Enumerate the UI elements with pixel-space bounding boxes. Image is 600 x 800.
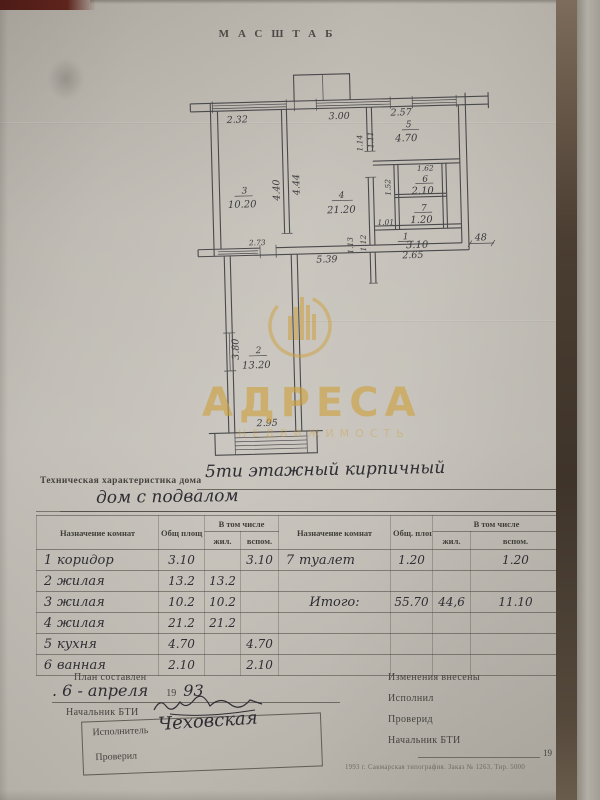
table-row: 2жилая 13.2 13.2 — [37, 571, 561, 592]
room-name: коридор — [57, 553, 114, 568]
table-row: 4жилая 21.2 21.2 — [37, 613, 561, 634]
photo-top-left-dark-edge — [0, 0, 96, 10]
watermark-brand-text: АДРЕСА — [202, 380, 422, 426]
room-living-area: 13.2 — [205, 571, 241, 592]
room-total-area — [391, 571, 433, 592]
col-header-name-left: Назначение комнат — [37, 516, 159, 550]
room-living-area — [205, 634, 241, 655]
room-aux-area: 1.20 — [471, 550, 561, 571]
col-header-aux-left: вспом. — [241, 532, 279, 550]
dim-label: 2.32 — [226, 114, 248, 126]
room-area: 13.20 — [242, 360, 272, 372]
checked-label-right: Проверид — [388, 714, 433, 725]
dim-label: 48 — [474, 232, 487, 243]
plan-date-handwritten: . 6 - апреля — [52, 681, 148, 700]
room-row-number: 2 — [39, 574, 57, 589]
room-aux-area: 2.10 — [241, 655, 279, 676]
room-aux-area — [241, 613, 279, 634]
dim-label: 2.57 — [389, 107, 412, 119]
dim-label: 2.73 — [248, 238, 266, 247]
room-living-area: 10.2 — [205, 592, 241, 613]
title-underline — [197, 489, 560, 490]
col-header-total-right: Общ. площ. — [391, 516, 433, 550]
col-header-including-right: В том числе — [433, 516, 561, 532]
date-year-printed: 19 — [543, 748, 552, 758]
room-number: 6 — [422, 175, 428, 185]
room-total-area — [391, 613, 433, 634]
room-living-area — [433, 634, 471, 655]
room-total-area: 21.2 — [159, 613, 205, 634]
table-row: 1коридор 3.10 3.10 7туалет 1.20 1.20 — [37, 550, 561, 571]
watermark-logo-icon — [264, 286, 336, 360]
col-header-living-left: жил. — [205, 532, 241, 550]
room-name: кухня — [57, 637, 97, 652]
room-row-number: 5 — [39, 637, 57, 652]
dim-label: 1.01 — [377, 218, 394, 227]
tech-characteristic-label: Техническая характеристика дома — [40, 476, 201, 486]
room-area: 1.20 — [410, 215, 433, 227]
room-name — [279, 613, 391, 634]
table-row: 5кухня 4.70 4.70 — [37, 634, 561, 655]
page-bottom-shadow — [0, 790, 556, 800]
dim-label: 2.65 — [401, 250, 423, 262]
totals-living-area: 44,6 — [433, 592, 471, 613]
room-aux-area — [471, 571, 561, 592]
col-header-living-right: жил. — [433, 532, 471, 550]
room-name: туалет — [299, 553, 355, 568]
room-name: жилая — [57, 616, 105, 631]
room-living-area: 21.2 — [205, 613, 241, 634]
room-area: 4.70 — [394, 133, 418, 145]
room-total-area — [391, 634, 433, 655]
room-aux-area — [471, 613, 561, 634]
dim-label: 4.44 — [291, 174, 303, 196]
room-aux-area — [241, 571, 279, 592]
col-header-name-right: Назначение комнат — [279, 516, 391, 550]
page-binding-edge — [556, 0, 577, 800]
totals-total-area: 55.70 — [391, 592, 433, 613]
room-total-area: 4.70 — [159, 634, 205, 655]
room-row-number: 6 — [39, 658, 57, 673]
dim-label: 4.40 — [271, 179, 283, 201]
executor-label: Исполнитель — [92, 725, 148, 738]
room-area: 10.20 — [228, 199, 258, 211]
page-left-shadow — [0, 0, 8, 800]
room-name: жилая — [57, 574, 105, 589]
room-number: 7 — [421, 204, 427, 214]
rooms-table: Назначение комнат Общ площ В том числе Н… — [36, 515, 560, 676]
photo-top-shadow — [90, 0, 560, 4]
room-aux-area — [241, 592, 279, 613]
room-name — [279, 571, 391, 592]
room-number: 5 — [406, 120, 412, 130]
watermark-tagline-text: НЕДВИЖИМОСТЬ — [238, 427, 410, 440]
dim-label: 1.52 — [383, 179, 392, 196]
date-blank-line — [418, 757, 540, 758]
room-area: 21.20 — [326, 205, 357, 217]
house-type-handwritten: 5ти этажный кирпичный — [205, 458, 446, 482]
room-number: 4 — [338, 191, 345, 201]
checked-label: Проверил — [95, 751, 137, 764]
background-page-edge — [577, 0, 600, 800]
dim-label: 1.11 — [366, 131, 375, 148]
room-row-number: 4 — [39, 616, 57, 631]
chief-bti-label: Начальник БТИ — [66, 707, 139, 718]
room-row-number: 3 — [39, 595, 57, 610]
room-living-area — [205, 550, 241, 571]
room-row-number: 7 — [281, 553, 299, 568]
room-name: жилая — [57, 595, 105, 610]
room-number: 2 — [255, 346, 262, 356]
totals-aux-area: 11.10 — [471, 592, 561, 613]
room-aux-area — [471, 634, 561, 655]
room-name: ванная — [57, 658, 106, 673]
room-aux-area: 3.10 — [241, 550, 279, 571]
room-number: 3 — [241, 186, 247, 196]
dim-label: 3.00 — [328, 111, 349, 123]
dim-label: 1.12 — [359, 234, 368, 251]
dim-label: 1.13 — [346, 237, 355, 254]
room-living-area — [433, 613, 471, 634]
dim-label: 5.39 — [316, 254, 337, 266]
room-total-area: 13.2 — [159, 571, 205, 592]
room-total-area: 3.10 — [159, 550, 205, 571]
room-total-area: 10.2 — [159, 592, 205, 613]
done-by-label: Исполнил — [388, 693, 434, 704]
col-header-aux-right: вспом. — [471, 532, 561, 550]
room-aux-area: 4.70 — [241, 634, 279, 655]
totals-label: Итого: — [279, 592, 391, 613]
house-basement-handwritten: дом с подвалом — [96, 486, 239, 508]
typography-print-info: 1993 г. Сакмарская типография. Заказ № 1… — [292, 764, 578, 771]
table-row: 3жилая 10.2 10.2 Итого: 55.70 44,6 11.10 — [37, 592, 561, 613]
room-area: 2.10 — [410, 186, 434, 198]
executor-stamp-box: Исполнитель Чеховская Проверил — [81, 712, 323, 775]
room-living-area — [433, 550, 471, 571]
chief-bti-label-right: Начальник БТИ — [388, 735, 461, 746]
room-name — [279, 655, 391, 676]
col-header-total-left: Общ площ — [159, 516, 205, 550]
dim-label: 1.62 — [417, 164, 434, 173]
room-total-area: 2.10 — [159, 655, 205, 676]
room-total-area: 1.20 — [391, 550, 433, 571]
dim-label: 1.14 — [355, 134, 364, 151]
changes-made-label: Изменения внесены — [388, 672, 480, 683]
room-living-area — [433, 571, 471, 592]
room-living-area — [205, 655, 241, 676]
room-row-number: 1 — [39, 553, 57, 568]
room-aux-area — [471, 655, 561, 676]
col-header-including-left: В том числе — [205, 516, 279, 532]
room-name — [279, 634, 391, 655]
dim-label: 3.80 — [230, 338, 242, 359]
